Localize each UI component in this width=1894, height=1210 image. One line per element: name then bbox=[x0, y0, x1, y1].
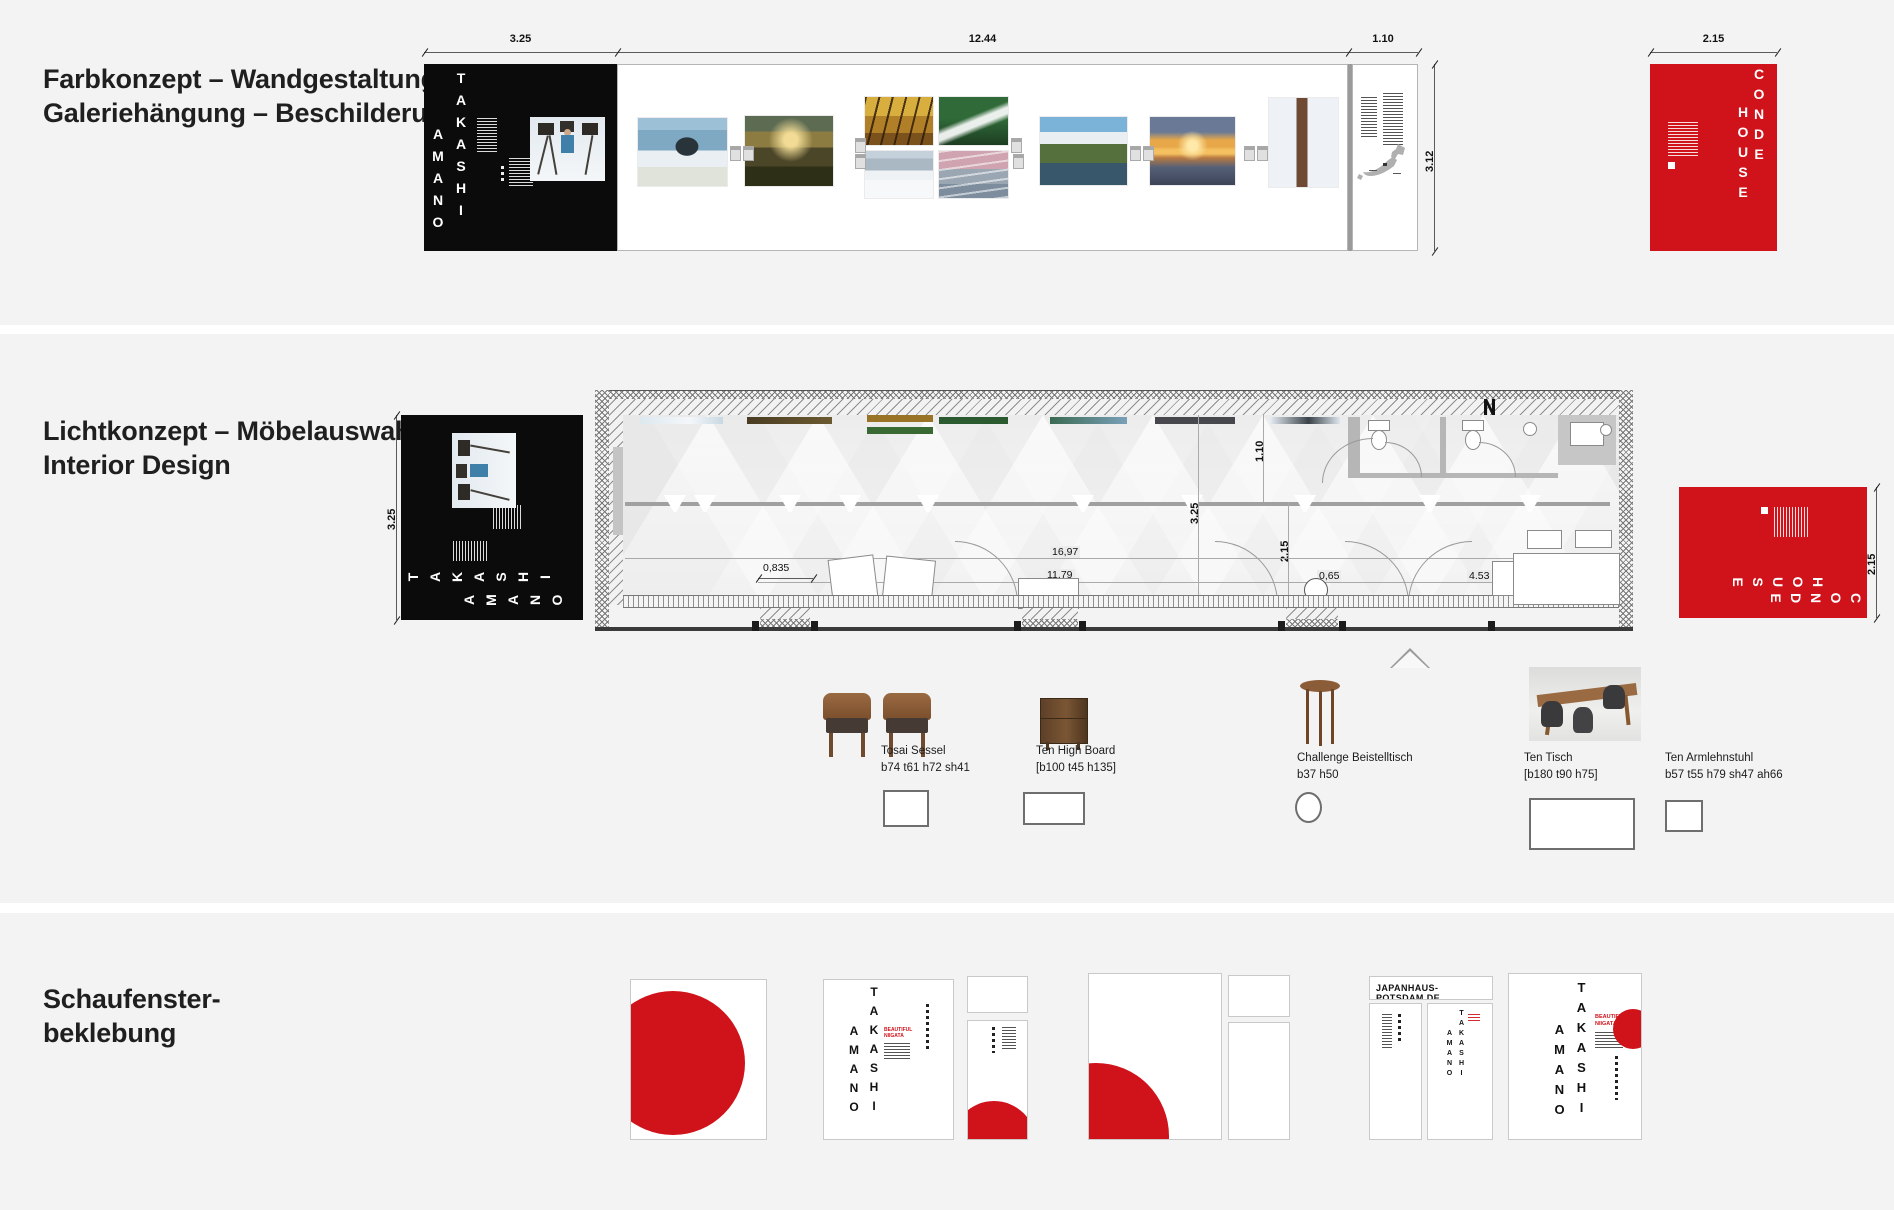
utility-block bbox=[1558, 415, 1616, 465]
chair-seat bbox=[826, 718, 868, 733]
poster-microtext bbox=[453, 541, 489, 561]
highboard-photo bbox=[1040, 698, 1086, 750]
window-panel-reeds-1 bbox=[1369, 1003, 1422, 1140]
camera-icon bbox=[538, 123, 554, 135]
chair-silhouette bbox=[1603, 685, 1625, 709]
plan-dim-110: 1.10 bbox=[1254, 441, 1266, 462]
furniture-0-symbol bbox=[883, 790, 929, 827]
dim-conde2-height: 2.15 bbox=[1866, 554, 1878, 575]
facade-joint bbox=[1278, 621, 1285, 631]
facade-pier bbox=[760, 608, 810, 619]
facade-joint bbox=[752, 621, 759, 631]
amano-vertical-text: AMANO bbox=[1553, 1022, 1566, 1122]
chair-silhouette bbox=[1541, 701, 1563, 727]
poster-takashi-text: TAKASHI bbox=[405, 570, 559, 584]
beautiful-niigata-text: BEAUTIFUL NIIGATA bbox=[884, 1027, 912, 1039]
photo-snow-peaks bbox=[865, 151, 933, 198]
floor-plan: 3.25 1.10 2.15 16,97 11,79 0,835 0,65 4.… bbox=[595, 390, 1633, 632]
ten-tisch-photo bbox=[1529, 667, 1641, 741]
cabinet-body bbox=[1040, 698, 1088, 744]
furniture-0-name: Tosai Sessel bbox=[881, 745, 946, 757]
photographer-photo bbox=[452, 433, 516, 508]
conde-text: CONDE bbox=[1752, 66, 1766, 166]
takashi-vertical-text: TAKASHI bbox=[868, 985, 880, 1118]
poster-conde-house: CONDE HOUSE bbox=[1650, 64, 1777, 251]
amano-vertical-text: AMANO bbox=[1446, 1030, 1453, 1080]
chair-leg bbox=[829, 733, 833, 757]
gallery-label-tag bbox=[1257, 146, 1268, 161]
facade-joint bbox=[1488, 621, 1495, 631]
window-transom bbox=[967, 976, 1028, 1013]
dim-info-width: 1.10 bbox=[1348, 33, 1418, 45]
japanese-column bbox=[992, 1027, 995, 1053]
poster-microtext bbox=[477, 118, 497, 154]
facade-joint bbox=[1014, 621, 1021, 631]
photo-winter-coast bbox=[638, 118, 727, 186]
window-pane-empty bbox=[1228, 1022, 1290, 1140]
camera-icon bbox=[582, 123, 598, 135]
photo-snowy-tree bbox=[1269, 98, 1338, 187]
window-band bbox=[623, 595, 1619, 608]
dim-poster2-height: 3.25 bbox=[386, 509, 398, 530]
website-url: JAPANHAUS-POTSDAM.DE bbox=[1376, 983, 1492, 1000]
camera-icon bbox=[456, 464, 467, 478]
gallery-label-tag bbox=[1011, 138, 1022, 153]
section1-title-line1: Farbkonzept – Wandgestaltung – bbox=[43, 62, 460, 96]
window-panel-reeds-2: TAKASHI AMANO bbox=[1427, 1003, 1493, 1140]
window-panel-circle bbox=[630, 979, 767, 1140]
plan-artwork-strip bbox=[640, 417, 723, 424]
niigata-text: NIIGATA bbox=[884, 1033, 912, 1039]
facade-pier bbox=[1286, 608, 1338, 619]
table-leg bbox=[1331, 689, 1334, 744]
chair-seat bbox=[886, 718, 928, 733]
concept-sheet: Farbkonzept – Wandgestaltung – Galeriehä… bbox=[0, 0, 1894, 1210]
photo-sunset-lake bbox=[1150, 117, 1235, 185]
chair-back bbox=[823, 693, 871, 720]
section1-title-line2: Galeriehängung – Beschilderung bbox=[43, 96, 460, 130]
house-text: HOUSE bbox=[1726, 575, 1826, 589]
japanese-column bbox=[926, 1004, 929, 1050]
section3-title-line1: Schaufenster- bbox=[43, 982, 220, 1016]
person-body bbox=[470, 464, 488, 477]
plan-desk-side bbox=[1492, 561, 1514, 596]
rotated-poster-inner: TAKASHI AMANO bbox=[401, 421, 583, 614]
conde-logo-square bbox=[1668, 162, 1675, 169]
tripod-leg bbox=[537, 135, 549, 174]
dim-poster-width: 3.25 bbox=[424, 33, 617, 45]
amano-vertical-text: AMANO bbox=[848, 1024, 860, 1119]
tripod-leg bbox=[585, 135, 594, 175]
plan-dim-0835: 0,835 bbox=[763, 562, 789, 574]
utility-fixture bbox=[1600, 424, 1612, 436]
micro-paragraph bbox=[1002, 1027, 1016, 1049]
dim-line-conde2 bbox=[1876, 487, 1877, 618]
window-panel-narrow bbox=[967, 1020, 1028, 1140]
tripod-leg bbox=[470, 445, 510, 454]
camera-icon bbox=[458, 484, 470, 500]
website-header-panel: JAPANHAUS-POTSDAM.DE bbox=[1369, 976, 1493, 1000]
person-body bbox=[561, 135, 574, 153]
poster-amano-text: AMANO bbox=[431, 126, 445, 236]
cabinet-line bbox=[1040, 718, 1086, 719]
photo-forest-stream bbox=[939, 97, 1008, 145]
gallery-label-tag bbox=[855, 154, 866, 169]
furniture-3-spec: [b180 t90 h75] bbox=[1524, 769, 1598, 781]
furniture-4-spec: b57 t55 h79 sh47 ah66 bbox=[1665, 769, 1783, 781]
japanese-column bbox=[1398, 1014, 1401, 1044]
window-panel-typo-large: TAKASHI AMANO BEAUTIFUL NIIGATA bbox=[1508, 973, 1642, 1140]
sink bbox=[1523, 422, 1537, 436]
camera-icon bbox=[458, 440, 470, 456]
photo-autumn-branches bbox=[865, 97, 933, 145]
red-circle-graphic bbox=[967, 1101, 1028, 1140]
furniture-1-name: Ten High Board bbox=[1036, 745, 1115, 757]
red-circle-graphic bbox=[630, 991, 745, 1135]
furniture-1-symbol bbox=[1023, 792, 1085, 825]
house-text: HOUSE bbox=[1736, 104, 1750, 204]
conde-microtext bbox=[1774, 507, 1808, 537]
reeds-photo bbox=[1370, 1084, 1421, 1139]
micro-paragraph bbox=[1382, 1014, 1392, 1048]
conde-text: CONDE bbox=[1764, 591, 1864, 605]
info-text-block bbox=[1383, 93, 1403, 145]
dim-line-conde bbox=[1650, 52, 1777, 53]
plan-dim-1697: 16,97 bbox=[1050, 546, 1080, 558]
tripod-leg bbox=[470, 489, 509, 501]
facade-joint bbox=[811, 621, 818, 631]
gallery-label-tag bbox=[1013, 154, 1024, 169]
plan-left-wall bbox=[595, 390, 609, 627]
section3-title-line2: beklebung bbox=[43, 1016, 220, 1050]
plan-artwork-strip bbox=[1155, 417, 1235, 424]
plan-right-wall bbox=[1619, 390, 1633, 627]
section1-title: Farbkonzept – Wandgestaltung – Galeriehä… bbox=[43, 62, 460, 130]
dim-wall-height: 3.12 bbox=[1424, 151, 1436, 172]
plan-artwork-strip bbox=[1270, 417, 1340, 424]
poster-japanese-column bbox=[501, 166, 504, 182]
micro-paragraph bbox=[884, 1043, 910, 1059]
utility-fixture bbox=[1570, 422, 1604, 446]
poster-microtext bbox=[493, 505, 521, 529]
red-circle-graphic bbox=[1088, 1063, 1169, 1140]
plan-top-wall-inner bbox=[595, 399, 1633, 416]
poster-amano-text: AMANO bbox=[461, 593, 571, 607]
furniture-4-name: Ten Armlehnstuhl bbox=[1665, 752, 1753, 764]
rotated-conde-inner: CONDE HOUSE bbox=[1679, 489, 1866, 616]
conde-logo-square bbox=[1761, 507, 1768, 514]
photo-mountain-river bbox=[1040, 117, 1127, 185]
plan-desk-chair bbox=[1575, 530, 1612, 548]
wc-wall bbox=[1440, 417, 1446, 475]
furniture-1-spec: [b100 t45 h135] bbox=[1036, 762, 1116, 774]
tripod-leg bbox=[549, 135, 558, 175]
plan-desk-chair bbox=[1527, 530, 1562, 549]
micro-paragraph-red bbox=[1468, 1014, 1480, 1022]
chair-leg bbox=[861, 733, 865, 757]
section2-title: Lichtkonzept – Möbelauswahl Interior Des… bbox=[43, 414, 419, 482]
info-text-block bbox=[1361, 97, 1377, 137]
furniture-2-spec: b37 h50 bbox=[1297, 769, 1339, 781]
gallery-label-tag bbox=[1130, 146, 1141, 161]
takashi-vertical-text: TAKASHI bbox=[1458, 1010, 1465, 1080]
photo-blossom-terraces bbox=[939, 151, 1008, 198]
plan-artwork-strip bbox=[1050, 417, 1127, 424]
table-leg bbox=[1319, 691, 1322, 746]
section2-title-line2: Interior Design bbox=[43, 448, 419, 482]
section3-title: Schaufenster- beklebung bbox=[43, 982, 220, 1050]
photographer-photo bbox=[530, 117, 605, 181]
photo-sunrise-valley bbox=[745, 116, 833, 186]
gallery-label-tag bbox=[1244, 146, 1255, 161]
dim-line-top bbox=[424, 52, 1418, 53]
table-leg bbox=[1306, 689, 1309, 744]
section2-title-line1: Lichtkonzept – Möbelauswahl bbox=[43, 414, 419, 448]
conde-microtext bbox=[1668, 122, 1698, 156]
reeds-photo bbox=[1428, 1084, 1492, 1139]
chair-silhouette bbox=[1573, 707, 1593, 733]
japan-map bbox=[1355, 139, 1413, 183]
chair-back bbox=[883, 693, 931, 720]
furniture-2-symbol bbox=[1295, 792, 1322, 823]
side-table-photo bbox=[1298, 680, 1342, 746]
gallery-label-tag bbox=[730, 146, 741, 161]
plan-artwork-strip bbox=[867, 415, 933, 422]
gallery-label-tag bbox=[1143, 146, 1154, 161]
takashi-vertical-text: TAKASHI bbox=[1575, 980, 1588, 1120]
facade-pier bbox=[1022, 608, 1078, 619]
wc-wall bbox=[1348, 473, 1558, 478]
gallery-label-tag bbox=[743, 146, 754, 161]
furniture-3-symbol bbox=[1529, 798, 1635, 850]
facade-joint bbox=[1079, 621, 1086, 631]
plan-dim-325: 3.25 bbox=[1189, 503, 1201, 524]
poster-takashi-text: TAKASHI bbox=[454, 70, 468, 224]
furniture-3-name: Ten Tisch bbox=[1524, 752, 1573, 764]
plan-desk bbox=[1513, 553, 1620, 605]
furniture-0-spec: b74 t61 h72 sh41 bbox=[881, 762, 970, 774]
poster-takashi-amano-rotated: TAKASHI AMANO bbox=[401, 415, 583, 620]
plan-pillar bbox=[613, 447, 623, 535]
info-panel bbox=[1352, 64, 1418, 251]
facade-line bbox=[595, 627, 1633, 631]
window-pane-empty bbox=[1228, 975, 1290, 1017]
plan-artwork-strip bbox=[747, 417, 832, 424]
light-track bbox=[625, 502, 1610, 506]
gallery-label-tag bbox=[855, 138, 866, 153]
plan-artwork-strip bbox=[939, 417, 1008, 424]
facade-joint bbox=[1339, 621, 1346, 631]
window-panel-quarter-circle bbox=[1088, 973, 1222, 1140]
furniture-2-name: Challenge Beistelltisch bbox=[1297, 752, 1413, 764]
poster-conde-house-rotated: CONDE HOUSE bbox=[1679, 487, 1867, 618]
poster-takashi-amano: TAKASHI AMANO bbox=[424, 64, 617, 251]
japanese-column bbox=[1615, 1056, 1618, 1100]
dim-line bbox=[758, 578, 813, 579]
plan-artwork-strip bbox=[867, 427, 933, 434]
dim-gallery-width: 12.44 bbox=[617, 33, 1348, 45]
dim-conde-width: 2.15 bbox=[1650, 33, 1777, 45]
furniture-4-symbol bbox=[1665, 800, 1703, 832]
window-panel-typo: TAKASHI AMANO BEAUTIFUL NIIGATA bbox=[823, 979, 954, 1140]
